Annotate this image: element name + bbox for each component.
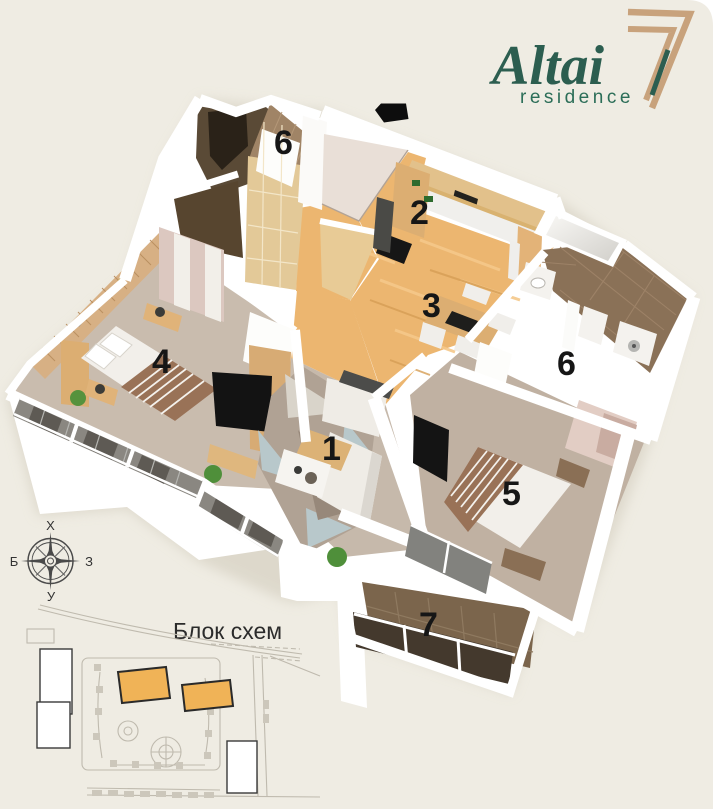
svg-text:Блок схем: Блок схем — [173, 618, 282, 644]
svg-text:6: 6 — [557, 345, 576, 383]
svg-text:У: У — [47, 589, 56, 604]
svg-text:residence: residence — [520, 87, 634, 108]
svg-text:7: 7 — [419, 606, 438, 644]
svg-text:2: 2 — [410, 194, 429, 232]
svg-text:Б: Б — [10, 554, 19, 569]
svg-text:4: 4 — [152, 343, 171, 381]
svg-text:5: 5 — [502, 475, 521, 513]
svg-text:6: 6 — [274, 124, 293, 162]
svg-text:3: 3 — [422, 287, 441, 325]
svg-text:1: 1 — [322, 430, 341, 468]
svg-text:Х: Х — [46, 518, 55, 533]
svg-text:З: З — [85, 554, 93, 569]
